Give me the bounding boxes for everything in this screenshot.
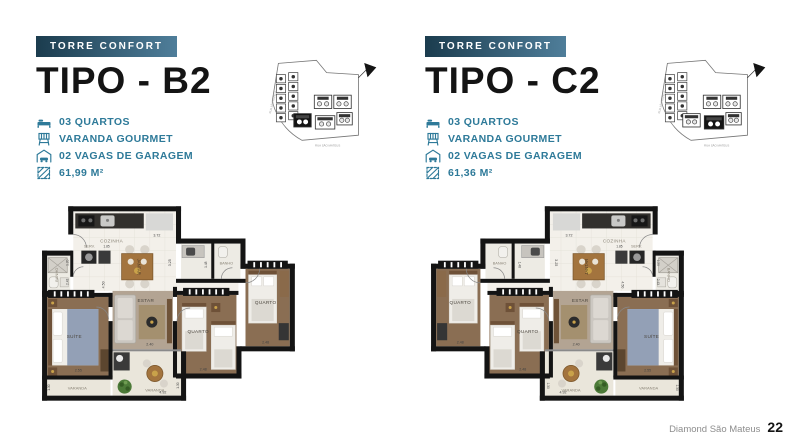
feature-label: VARANDA GOURMET	[59, 133, 173, 145]
brand-name: Diamond São Mateus	[669, 424, 760, 435]
feature-label: 02 VAGAS DE GARAGEM	[448, 150, 582, 162]
feature-label: 03 QUARTOS	[448, 116, 519, 128]
garage-icon	[36, 149, 52, 163]
feature-area: 61,99 M²	[36, 166, 388, 179]
svg-text:RUA SÃO MATEUS: RUA SÃO MATEUS	[704, 142, 729, 147]
svg-text:2.55: 2.55	[644, 368, 651, 372]
svg-text:COZINHA: COZINHA	[603, 239, 627, 244]
svg-text:JANTAR: JANTAR	[584, 259, 589, 275]
svg-text:4.50: 4.50	[620, 281, 624, 288]
svg-text:BANHO: BANHO	[220, 262, 234, 266]
svg-text:SERV.: SERV.	[84, 245, 95, 249]
svg-text:2.48: 2.48	[519, 367, 526, 371]
unit-panel-b2: TORRE CONFORT TIPO - B2 03 QUARTOS VARAN…	[36, 36, 388, 428]
svg-text:2.40: 2.40	[146, 342, 153, 346]
svg-text:QUARTO: QUARTO	[187, 329, 209, 334]
feature-label: 61,99 M²	[59, 167, 104, 179]
svg-text:JANTAR: JANTAR	[137, 259, 142, 275]
svg-text:SERV.: SERV.	[631, 245, 642, 249]
svg-text:4.92: 4.92	[159, 391, 166, 395]
svg-text:VARANDA: VARANDA	[68, 386, 87, 391]
svg-text:BANHO: BANHO	[493, 262, 507, 266]
svg-text:2.40: 2.40	[573, 342, 580, 346]
floor-plan-c2: COZINHASERV.JANTARBANHOBANHOESTARSUÍTEQU…	[423, 204, 705, 406]
svg-text:COZINHA: COZINHA	[100, 239, 124, 244]
svg-text:2.43: 2.43	[66, 278, 70, 284]
svg-text:2.48: 2.48	[200, 367, 207, 371]
bed-icon	[36, 115, 52, 129]
svg-text:1.30: 1.30	[546, 382, 550, 388]
svg-text:BANHO: BANHO	[54, 268, 59, 282]
feature-label: 03 QUARTOS	[59, 116, 130, 128]
page-number: 22	[767, 419, 783, 435]
area-icon	[36, 166, 52, 180]
feature-area: 61,36 M²	[425, 166, 777, 179]
svg-text:2.48: 2.48	[262, 340, 269, 344]
svg-text:QUARTO: QUARTO	[255, 300, 277, 305]
svg-text:3.72: 3.72	[566, 234, 573, 238]
svg-text:ESTAR: ESTAR	[572, 298, 589, 303]
svg-text:3.25: 3.25	[168, 259, 172, 266]
svg-text:1.30: 1.30	[675, 384, 679, 390]
svg-text:4.50: 4.50	[102, 281, 106, 288]
brochure-page: { "page": { "footer_brand": "Diamond São…	[0, 0, 797, 445]
svg-text:2.48: 2.48	[457, 340, 464, 344]
tower-badge: TORRE CONFORT	[36, 36, 177, 57]
svg-text:1.85: 1.85	[616, 245, 622, 249]
feature-label: VARANDA GOURMET	[448, 133, 562, 145]
floor-plan-b2: COZINHASERV.JANTARBANHOBANHOESTARSUÍTEQU…	[34, 204, 316, 406]
svg-text:1.20: 1.20	[66, 259, 70, 265]
grill-icon	[425, 132, 441, 146]
grill-icon	[36, 132, 52, 146]
svg-text:ESTAR: ESTAR	[137, 298, 154, 303]
svg-text:1.48: 1.48	[518, 262, 522, 268]
area-icon	[425, 166, 441, 180]
unit-panel-c2: TORRE CONFORT TIPO - C2 03 QUARTOS VARAN…	[425, 36, 777, 428]
page-footer: Diamond São Mateus 22	[669, 419, 783, 435]
svg-text:1.30: 1.30	[176, 382, 180, 388]
site-location-map: RUA SÃO MATEUSRUA SÃO MATEUS	[652, 54, 770, 162]
svg-text:VARANDA: VARANDA	[639, 386, 658, 391]
svg-text:4.92: 4.92	[559, 391, 566, 395]
feature-label: 61,36 M²	[448, 167, 493, 179]
svg-text:RUA SÃO MATEUS: RUA SÃO MATEUS	[315, 142, 340, 147]
feature-label: 02 VAGAS DE GARAGEM	[59, 150, 193, 162]
svg-text:QUARTO: QUARTO	[517, 329, 539, 334]
svg-text:2.55: 2.55	[75, 368, 82, 372]
site-location-map: RUA SÃO MATEUSRUA SÃO MATEUS	[263, 54, 381, 162]
svg-text:2.43: 2.43	[656, 279, 660, 285]
svg-text:QUARTO: QUARTO	[450, 300, 472, 305]
svg-text:SUÍTE: SUÍTE	[67, 333, 82, 339]
svg-text:1.20: 1.20	[656, 260, 660, 266]
svg-text:1.30: 1.30	[47, 384, 51, 390]
tower-badge: TORRE CONFORT	[425, 36, 566, 57]
svg-text:BANHO: BANHO	[667, 268, 672, 282]
bed-icon	[425, 115, 441, 129]
svg-text:1.48: 1.48	[204, 261, 208, 267]
svg-text:SUÍTE: SUÍTE	[644, 333, 659, 339]
garage-icon	[425, 149, 441, 163]
svg-text:1.85: 1.85	[103, 245, 109, 249]
svg-text:3.72: 3.72	[153, 234, 160, 238]
svg-text:3.25: 3.25	[554, 259, 558, 266]
